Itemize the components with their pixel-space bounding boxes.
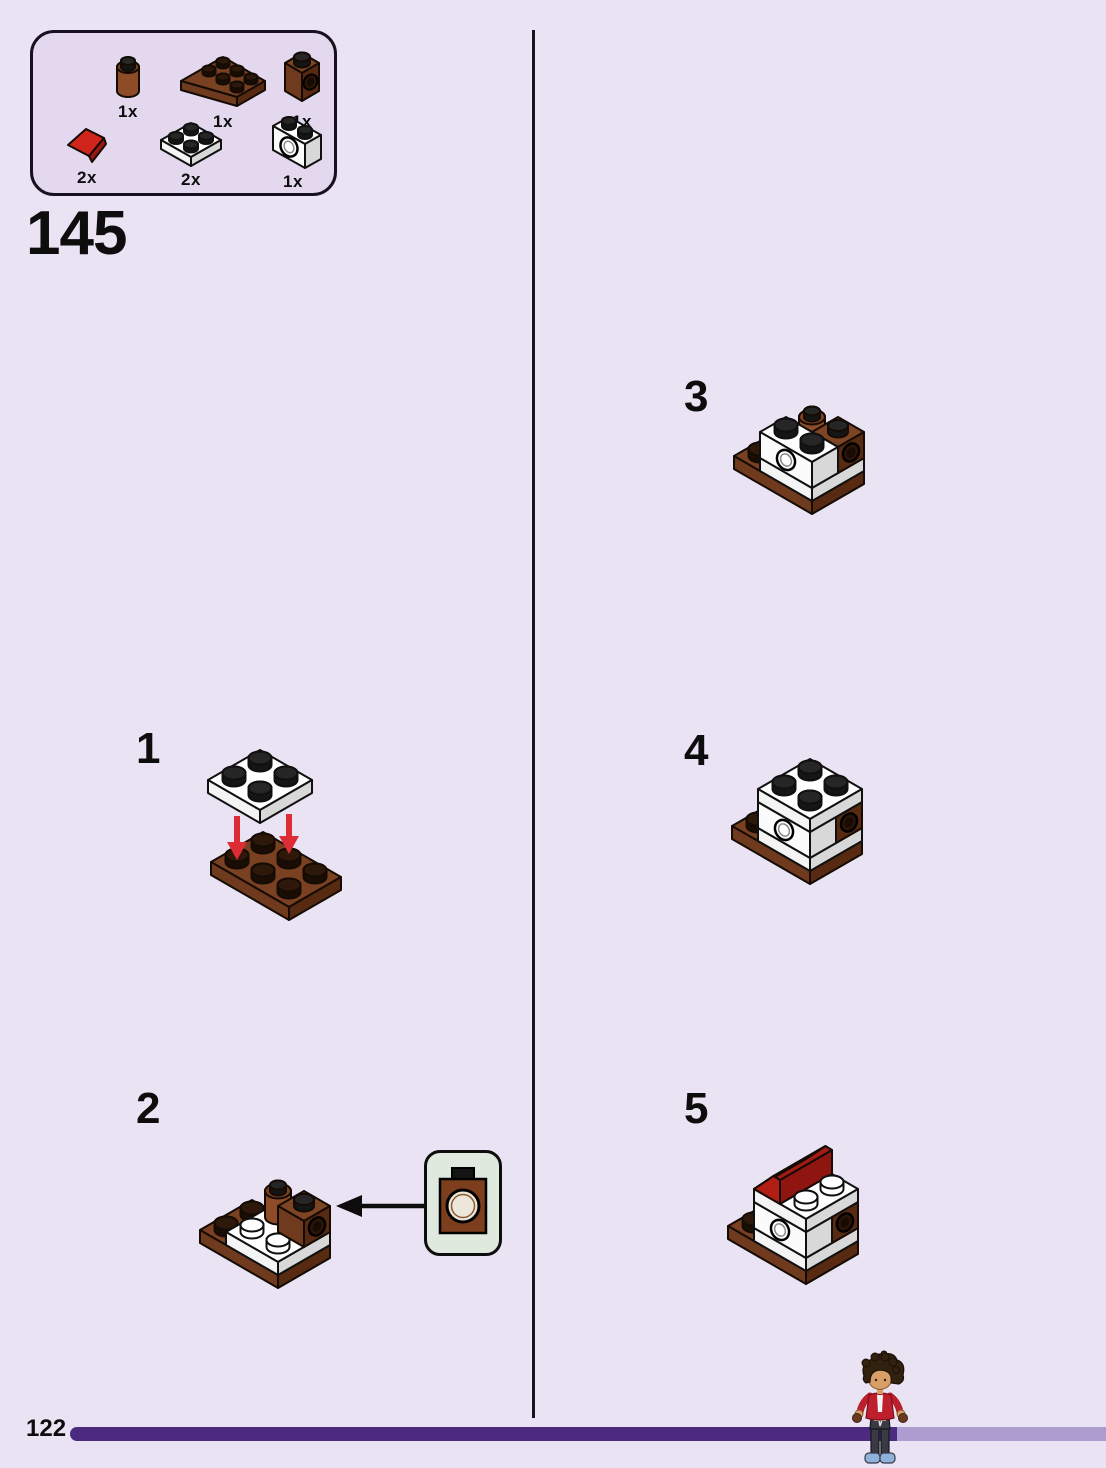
step-heading: 145 <box>26 198 126 269</box>
part-item: 1x <box>251 111 335 192</box>
technic-brick-front-view-icon <box>427 1153 499 1253</box>
callout-arrow-icon <box>332 1192 426 1220</box>
substep-number-1: 1 <box>136 724 160 774</box>
substep-number-5: 5 <box>684 1084 708 1134</box>
progress-bar-dark <box>70 1427 897 1441</box>
brick-round-1x1-brown-icon <box>110 53 146 101</box>
technic-brick-1x1-brown-icon <box>274 45 330 111</box>
step-3-illustration <box>728 330 913 520</box>
substep-number-4: 4 <box>684 726 708 776</box>
part-count: 2x <box>149 170 233 190</box>
substep-number-2: 2 <box>136 1084 160 1134</box>
plate-2x2-white-icon <box>155 117 227 169</box>
step-5-illustration <box>722 1100 907 1290</box>
slope-1x1-red-icon <box>64 125 110 167</box>
part-item: 2x <box>149 117 233 190</box>
actual-size-callout <box>424 1150 502 1256</box>
part-item: 1x <box>103 53 153 122</box>
substep-number-3: 3 <box>684 372 708 422</box>
page-number: 122 <box>26 1415 66 1443</box>
minifigure-icon <box>846 1350 920 1468</box>
part-count: 2x <box>55 168 119 188</box>
instruction-page: 1x 1x <box>0 0 1106 1468</box>
parts-panel: 1x 1x <box>30 30 337 196</box>
step-1-illustration <box>175 732 355 927</box>
part-item: 2x <box>55 125 119 188</box>
plate-2x3-brown-icon <box>173 49 273 111</box>
part-count: 1x <box>251 172 335 192</box>
progress-bar-light <box>897 1427 1106 1441</box>
part-count: 1x <box>103 102 153 122</box>
column-divider <box>532 30 535 1418</box>
technic-brick-1x2-white-icon <box>255 111 331 171</box>
step-4-illustration <box>726 700 911 890</box>
